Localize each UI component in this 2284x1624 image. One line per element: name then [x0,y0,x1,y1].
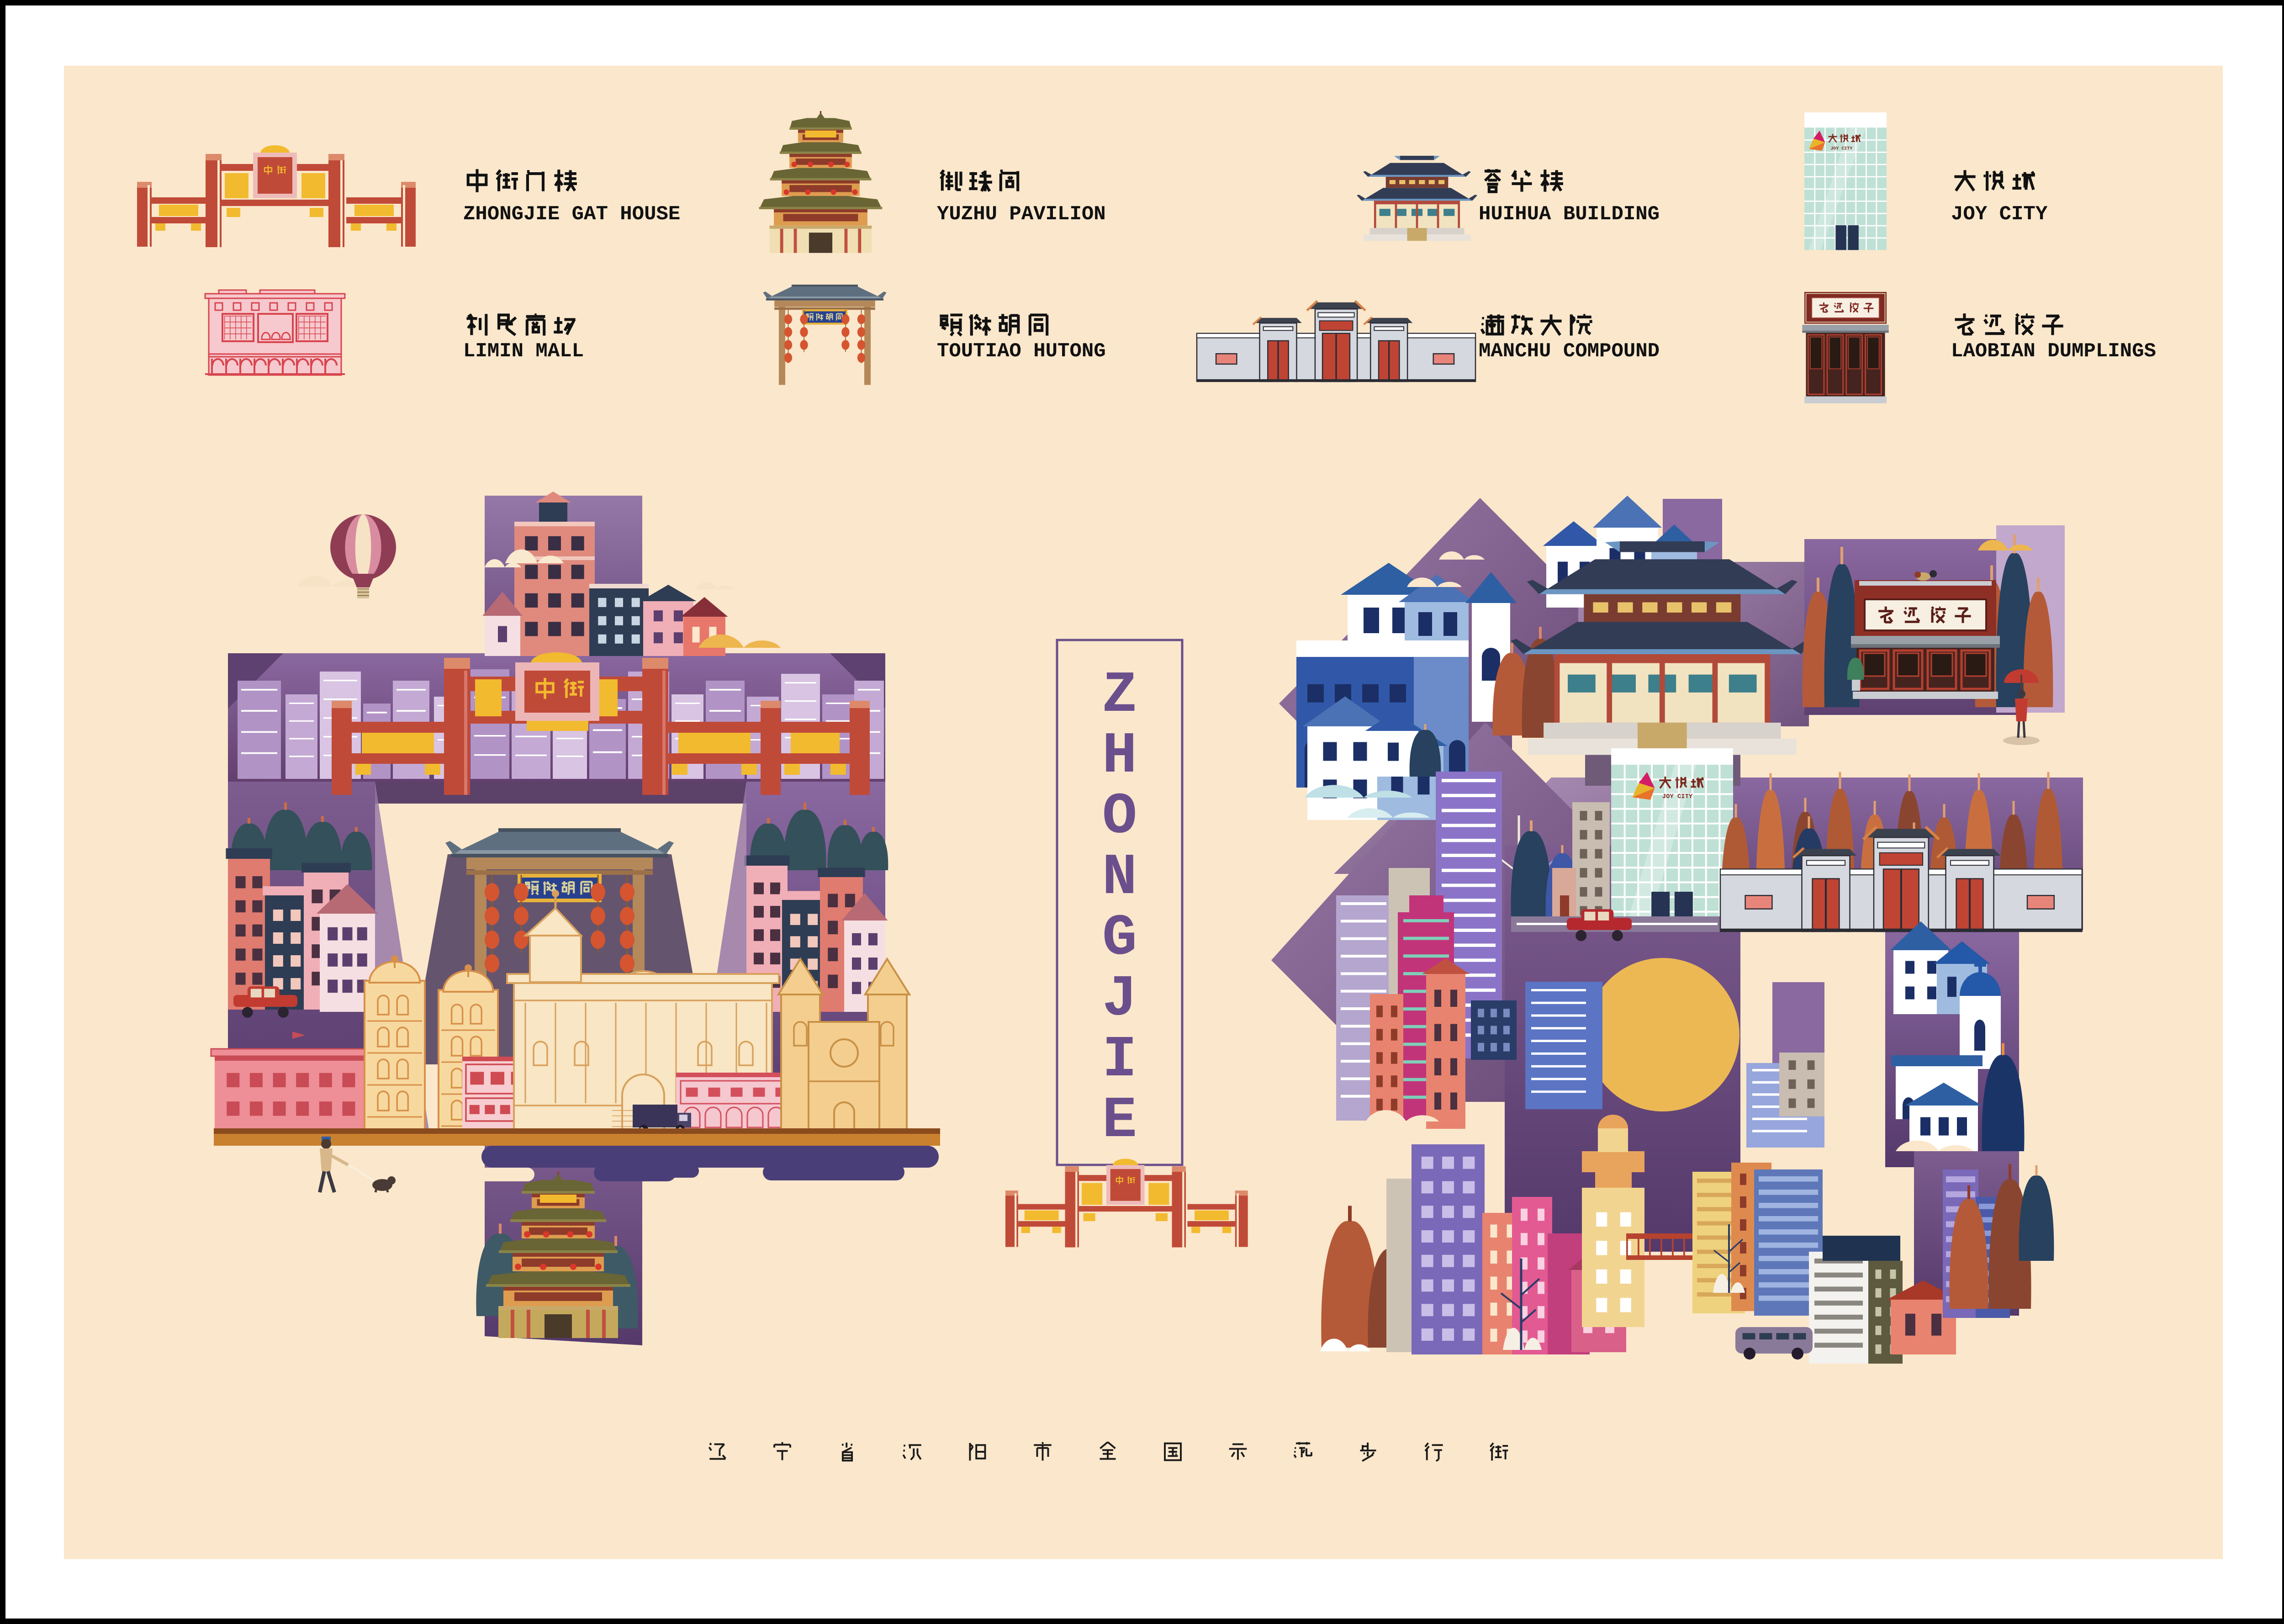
svg-text:N: N [1102,845,1137,911]
svg-text:HUIHUA BUILDING: HUIHUA BUILDING [1479,203,1660,226]
svg-text:E: E [1102,1088,1137,1154]
svg-text:JOY CITY: JOY CITY [1830,146,1852,151]
svg-text:J: J [1102,967,1137,1032]
svg-text:H: H [1102,724,1137,789]
svg-text:JOY CITY: JOY CITY [1662,793,1693,800]
svg-text:LIMIN MALL: LIMIN MALL [463,340,584,363]
svg-text:G: G [1102,906,1137,972]
svg-text:O: O [1102,784,1137,850]
svg-text:Z: Z [1102,663,1137,729]
svg-text:LAOBIAN DUMPLINGS: LAOBIAN DUMPLINGS [1951,340,2156,363]
svg-text:I: I [1102,1027,1137,1093]
svg-text:JOY CITY: JOY CITY [1951,203,2048,226]
svg-text:YUZHU PAVILION: YUZHU PAVILION [937,203,1106,226]
svg-text:MANCHU COMPOUND: MANCHU COMPOUND [1479,340,1660,363]
svg-text:ZHONGJIE GAT HOUSE: ZHONGJIE GAT HOUSE [463,203,680,226]
svg-text:TOUTIAO HUTONG: TOUTIAO HUTONG [937,340,1106,363]
